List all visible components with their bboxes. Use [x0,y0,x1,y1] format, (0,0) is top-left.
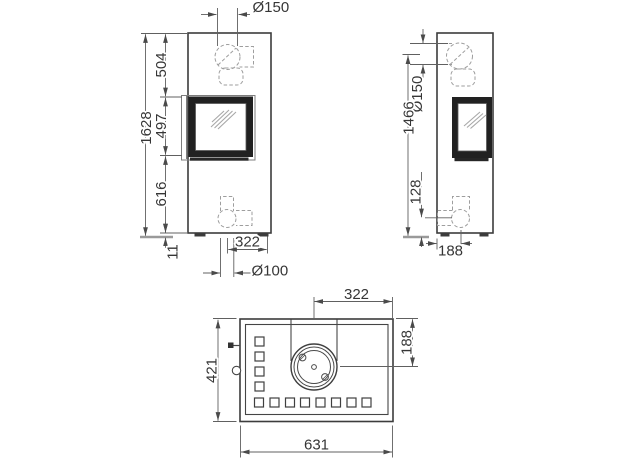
side-foot-left [441,233,450,237]
dim-label-flue-offset: 322 [344,286,369,303]
dim-label-window-height: 497 [153,113,170,138]
side-door-window [452,97,492,161]
dim-label-intake-diameter: Ø100 [252,263,289,280]
vent-slot [255,398,264,407]
dim-label-base-height: 11 [165,244,182,260]
stove-dimension-drawing: Ø150 504 497 616 1628 11 322 Ø100 [0,0,624,460]
dim-label-intake-offset: 322 [235,234,260,251]
dim-label-flue-diameter: Ø150 [253,0,290,16]
dim-label-width: 631 [304,437,329,454]
vent-slot [286,398,295,407]
vent-slot [270,398,279,407]
dim-label-intake-center-height: 128 [408,179,425,204]
hinge-circle [232,366,240,374]
dim-label-flue-depth-offset: 188 [399,330,416,355]
dim-label-depth: 421 [204,358,221,383]
dim-label-lower-height: 616 [153,181,170,206]
dim-label-flue-center-height: 1466 [401,101,418,134]
vent-slot [301,398,310,407]
vent-slot [332,398,341,407]
side-foot-right [480,233,489,237]
vent-slot [255,367,264,376]
dim-label-total-height: 1628 [138,111,155,144]
front-foot-left [195,233,206,237]
vent-slot [362,398,371,407]
vent-slot [255,382,264,391]
dim-label-intake-offset-side: 188 [438,243,463,260]
vent-slot [255,352,264,361]
front-door-window [182,96,256,161]
vent-slot [255,337,264,346]
front-door-bottom-strip [190,158,249,161]
dim-label-upper-height: 504 [153,52,170,77]
vent-slot [347,398,356,407]
handle-knob [228,343,234,349]
side-door-bottom-strip [455,158,489,161]
technical-drawing-canvas: Ø150 504 497 616 1628 11 322 Ø100 [0,0,624,460]
vent-slot [316,398,325,407]
